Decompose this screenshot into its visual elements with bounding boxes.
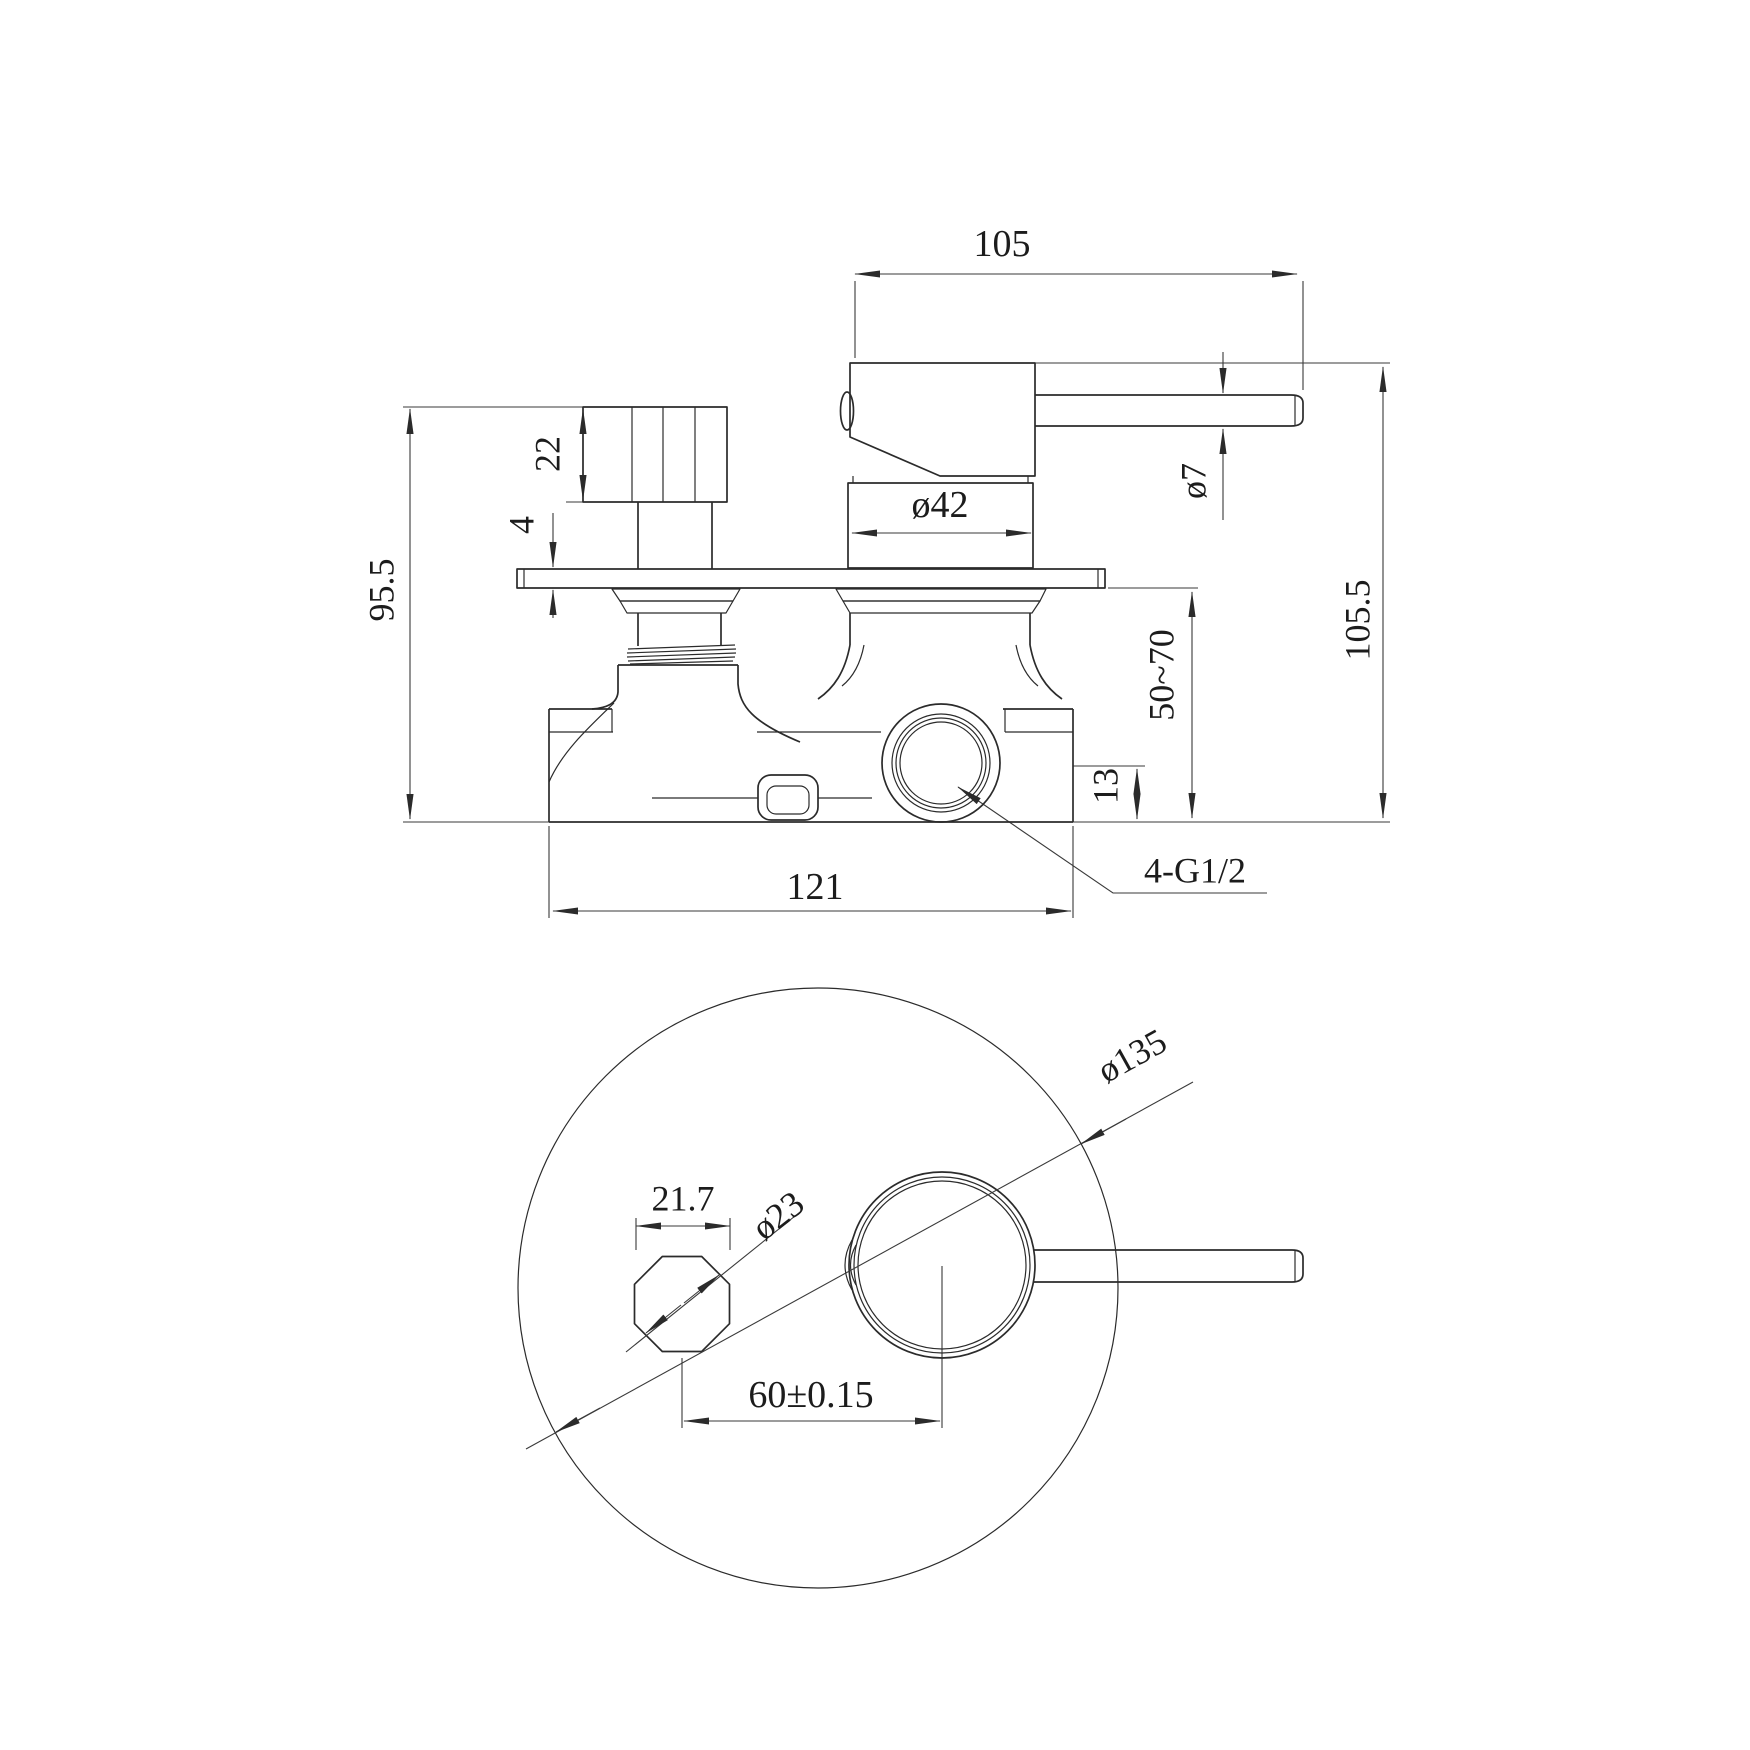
dim-label-21-7: 21.7: [652, 1179, 715, 1219]
dim-label-22: 22: [528, 436, 568, 472]
valve-body: [549, 704, 1073, 822]
dim-label-60: 60±0.15: [748, 1374, 873, 1416]
dim-label-95-5: 95.5: [362, 559, 402, 622]
handle-lever-plan: [1034, 1250, 1303, 1282]
dim-label-105: 105: [974, 223, 1031, 265]
side-dimension-lines: [410, 274, 1383, 911]
dim-label-105-5: 105.5: [1338, 580, 1378, 661]
wall-flange-plate: [517, 569, 1105, 588]
diverter-knob: [583, 407, 727, 569]
side-dimension-labels: 105 22 4 95.5 ø42 ø7 105.5 50~70 13 121 …: [362, 223, 1378, 908]
dim-label-dia23: ø23: [744, 1183, 811, 1248]
dim-label-dia135: ø135: [1091, 1021, 1173, 1091]
dim-label-50-70: 50~70: [1142, 629, 1182, 720]
dim-label-4: 4: [502, 516, 542, 534]
thread-spec-label: 4-G1/2: [1144, 851, 1246, 891]
dim-label-121: 121: [787, 866, 844, 908]
bottom-view: ø135 21.7 ø23 60±0.15: [518, 988, 1303, 1588]
dim-label-13: 13: [1086, 768, 1126, 804]
dim-label-dia42: ø42: [912, 484, 969, 526]
main-cartridge-stack: [818, 589, 1062, 699]
technical-drawing-page: 105 22 4 95.5 ø42 ø7 105.5 50~70 13 121 …: [0, 0, 1750, 1750]
handle-base-circle: [845, 1172, 1035, 1358]
diverter-cartridge-stack: [549, 589, 800, 782]
side-view: 105 22 4 95.5 ø42 ø7 105.5 50~70 13 121 …: [362, 223, 1390, 918]
mixer-valve-drawing: 105 22 4 95.5 ø42 ø7 105.5 50~70 13 121 …: [0, 0, 1750, 1750]
diverter-spindle-octagon: [635, 1257, 730, 1352]
dim-label-dia7: ø7: [1174, 463, 1214, 499]
handle-lever: [841, 363, 1304, 483]
